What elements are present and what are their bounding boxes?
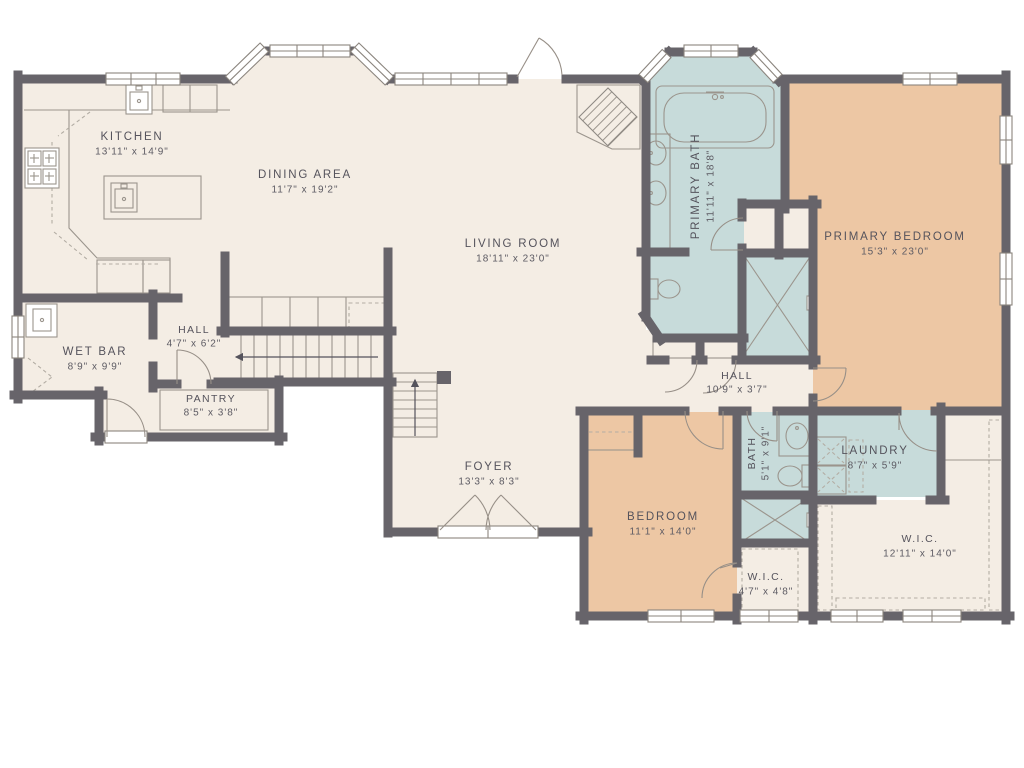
window — [740, 610, 798, 622]
window — [1000, 253, 1012, 305]
svg-text:4'7" x 4'8": 4'7" x 4'8" — [739, 587, 794, 598]
svg-text:BEDROOM: BEDROOM — [627, 511, 699, 523]
svg-text:4'7" x 6'2": 4'7" x 6'2" — [167, 339, 222, 350]
bay-window — [270, 45, 350, 57]
svg-text:PANTRY: PANTRY — [186, 393, 236, 405]
svg-text:HALL: HALL — [721, 370, 753, 382]
svg-text:LIVING ROOM: LIVING ROOM — [465, 238, 561, 250]
svg-text:13'11" x 14'9": 13'11" x 14'9" — [95, 147, 169, 158]
window — [831, 610, 883, 622]
window — [12, 316, 24, 358]
svg-text:BATH: BATH — [746, 437, 758, 470]
svg-text:KITCHEN: KITCHEN — [100, 131, 163, 143]
svg-text:LAUNDRY: LAUNDRY — [841, 445, 908, 457]
svg-text:8'7" x 5'9": 8'7" x 5'9" — [848, 461, 903, 472]
svg-text:HALL: HALL — [178, 324, 210, 336]
window — [106, 73, 180, 85]
entry-door — [517, 38, 562, 77]
svg-text:11'7" x 19'2": 11'7" x 19'2" — [271, 185, 338, 196]
svg-text:W.I.C.: W.I.C. — [748, 571, 785, 583]
svg-text:8'5" x 3'8": 8'5" x 3'8" — [184, 408, 239, 419]
floor-plan-canvas: KITCHEN 13'11" x 14'9" DINING AREA 11'7"… — [0, 0, 1024, 768]
window — [395, 73, 507, 85]
window — [903, 610, 961, 622]
svg-text:15'3" x 23'0": 15'3" x 23'0" — [861, 247, 929, 258]
svg-text:5'1" x 9'1": 5'1" x 9'1" — [761, 426, 772, 481]
window — [903, 73, 957, 85]
svg-text:W.I.C.: W.I.C. — [902, 533, 939, 545]
svg-text:DINING AREA: DINING AREA — [258, 169, 352, 181]
svg-text:FOYER: FOYER — [465, 461, 514, 473]
window — [1000, 116, 1012, 164]
floor-plan: KITCHEN 13'11" x 14'9" DINING AREA 11'7"… — [0, 0, 1024, 768]
cooktop — [25, 148, 59, 188]
svg-text:13'3" x 8'3": 13'3" x 8'3" — [458, 477, 519, 488]
svg-text:11'1" x 14'0": 11'1" x 14'0" — [629, 527, 696, 538]
kitchen-sink — [126, 85, 152, 114]
svg-text:10'9" x 3'7": 10'9" x 3'7" — [706, 385, 767, 396]
svg-text:WET BAR: WET BAR — [63, 346, 128, 358]
svg-text:12'11" x 14'0": 12'11" x 14'0" — [883, 549, 957, 560]
bay-window — [684, 45, 738, 57]
svg-text:11'11" x 18'8": 11'11" x 18'8" — [706, 150, 717, 223]
window — [648, 610, 714, 622]
svg-text:8'9" x 9'9": 8'9" x 9'9" — [68, 362, 123, 373]
svg-text:PRIMARY BATH: PRIMARY BATH — [690, 133, 702, 240]
svg-text:18'11" x 23'0": 18'11" x 23'0" — [476, 254, 550, 265]
svg-text:PRIMARY BEDROOM: PRIMARY BEDROOM — [824, 231, 966, 243]
